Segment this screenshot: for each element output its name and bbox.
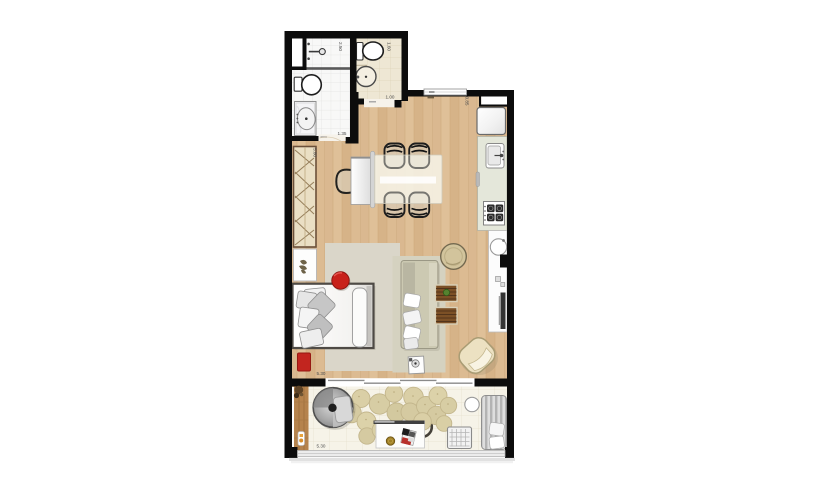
svg-text:1.60: 1.60	[386, 42, 391, 51]
svg-text:5.60: 5.60	[312, 148, 317, 157]
svg-text:2.50: 2.50	[338, 42, 343, 51]
svg-text:1.35: 1.35	[338, 131, 347, 136]
svg-text:5.30: 5.30	[317, 444, 326, 449]
svg-text:5.30: 5.30	[317, 371, 326, 376]
svg-text:0.85: 0.85	[464, 97, 469, 106]
svg-text:1.00: 1.00	[386, 95, 395, 100]
